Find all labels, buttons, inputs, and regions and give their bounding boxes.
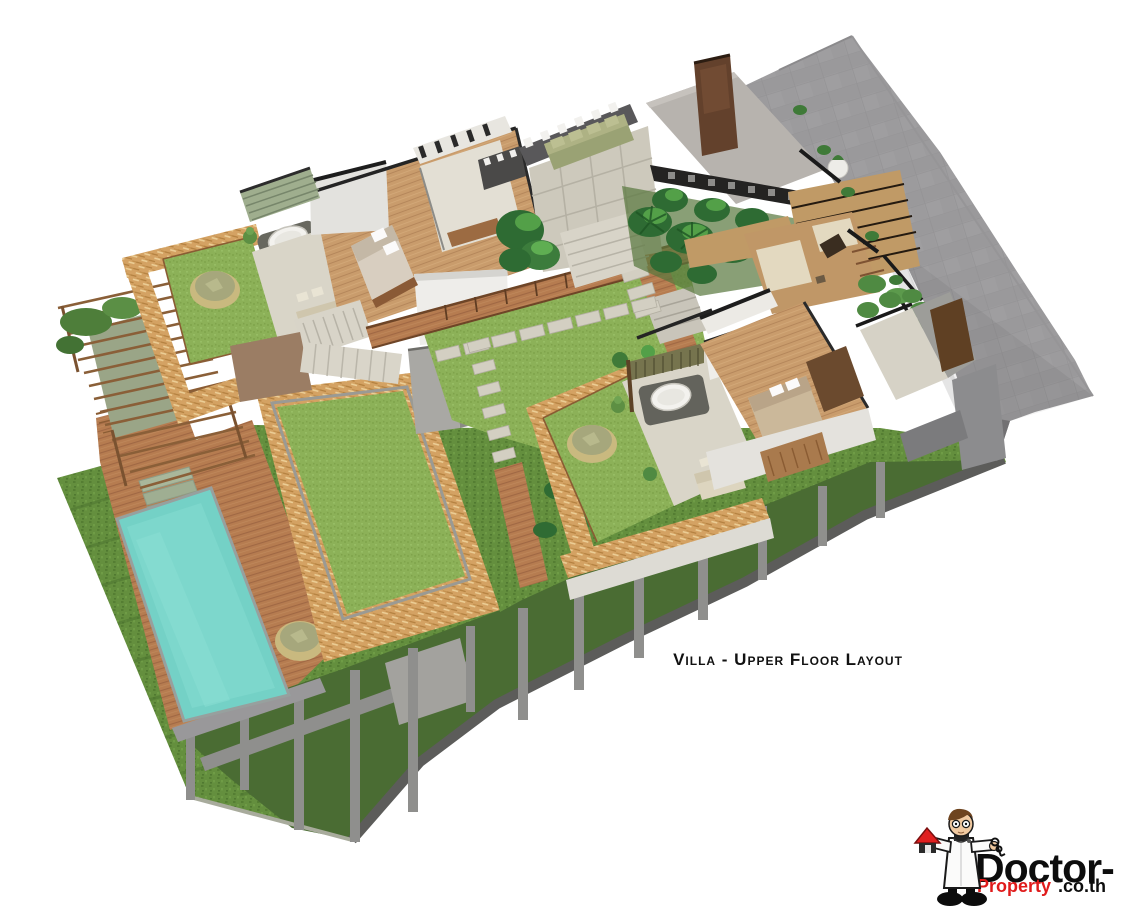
- svg-text:.co.th: .co.th: [1058, 876, 1106, 896]
- svg-text:Property: Property: [977, 876, 1051, 896]
- svg-text:Villa - Upper Floor Layout: Villa - Upper Floor Layout: [673, 650, 903, 669]
